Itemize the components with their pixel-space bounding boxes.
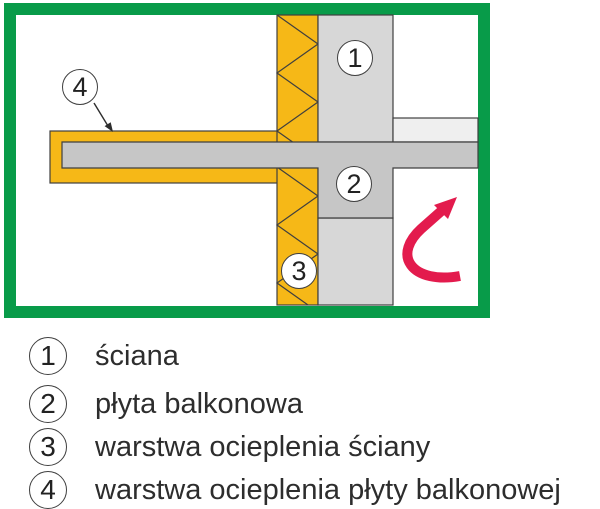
legend-number-badge: 3	[29, 428, 67, 466]
legend-number-badge: 2	[29, 385, 67, 423]
legend-label: warstwa ocieplenia ściany	[95, 431, 430, 464]
callout-4-slab-insulation: 4	[62, 69, 98, 105]
callout-3-wall-insulation: 3	[281, 253, 317, 289]
callout-1-wall: 1	[337, 40, 373, 76]
legend-label: warstwa ocieplenia płyty balkonowej	[95, 474, 561, 507]
floor-slab	[393, 118, 478, 142]
callout-4-number: 4	[72, 74, 87, 101]
callout-2-number: 2	[346, 171, 361, 198]
legend-label: płyta balkonowa	[95, 388, 303, 421]
wall-lower	[318, 218, 393, 305]
callout-3-number: 3	[291, 258, 306, 285]
legend-number-badge: 1	[29, 337, 67, 375]
legend-item-plyta-balkonowa: 2 płyta balkonowa	[29, 385, 303, 423]
callout-1-number: 1	[347, 45, 362, 72]
legend-item-ocieplenie-sciany: 3 warstwa ocieplenia ściany	[29, 428, 430, 466]
page: { "diagram": { "callouts": [ {"number": …	[0, 0, 600, 508]
wall-upper	[318, 15, 393, 142]
wall-insulation-upper	[277, 15, 318, 143]
legend-item-sciana: 1 ściana	[29, 337, 179, 375]
legend-item-ocieplenie-plyty: 4 warstwa ocieplenia płyty balkonowej	[29, 471, 561, 509]
legend-number-badge: 4	[29, 471, 67, 509]
callout-2-balcony-slab: 2	[336, 166, 372, 202]
legend-label: ściana	[95, 340, 179, 373]
